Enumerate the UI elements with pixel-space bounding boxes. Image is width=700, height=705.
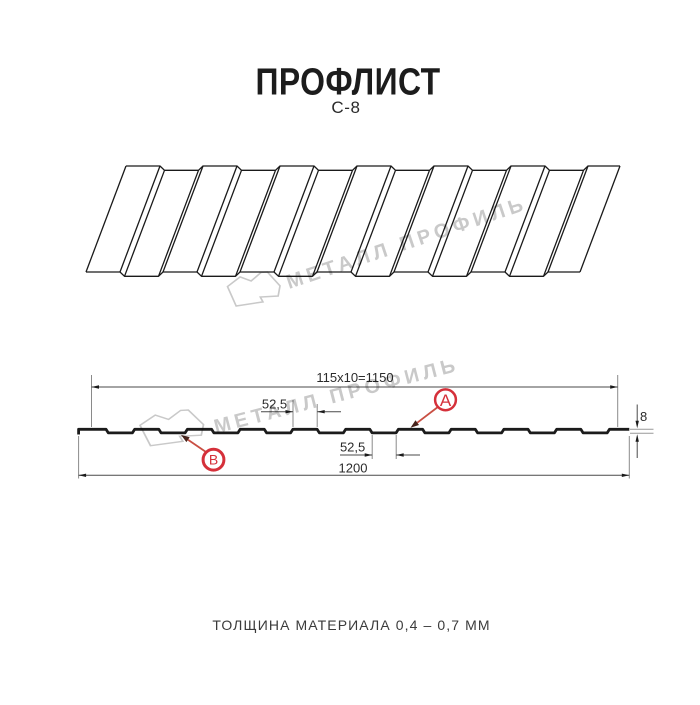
svg-text:А: А [440,391,452,410]
svg-text:В: В [209,452,218,468]
svg-text:ПРОФЛИСТ: ПРОФЛИСТ [255,61,440,103]
svg-text:8: 8 [640,409,647,424]
svg-text:1200: 1200 [339,461,368,476]
svg-text:С-8: С-8 [331,98,360,117]
svg-text:52,5: 52,5 [340,439,365,454]
svg-text:ТОЛЩИНА МАТЕРИАЛА 0,4 – 0,7 ММ: ТОЛЩИНА МАТЕРИАЛА 0,4 – 0,7 ММ [212,617,490,633]
